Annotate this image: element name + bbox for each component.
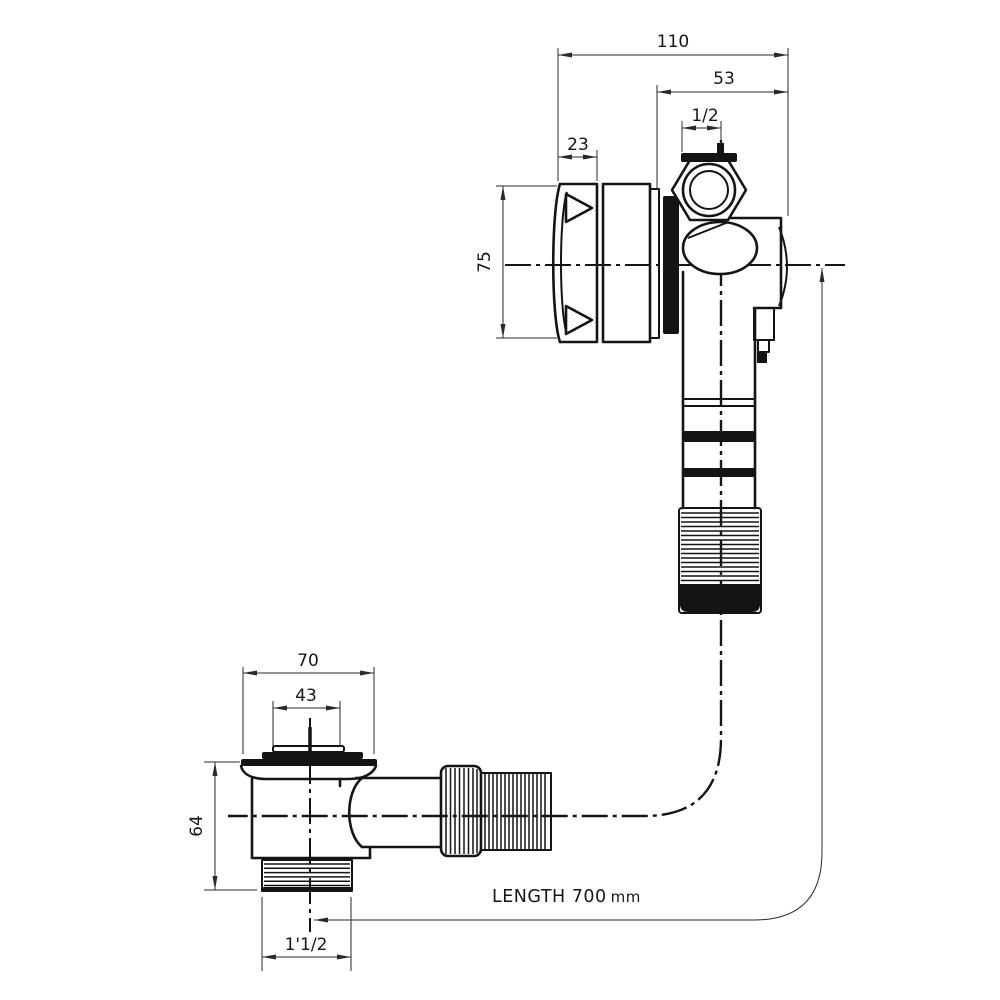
dimension-64: 64 xyxy=(187,762,218,890)
dimension-length-700: LENGTH 700mm xyxy=(492,887,641,907)
dia75-extension-lines xyxy=(496,186,557,338)
outlet-thread-hatch xyxy=(485,774,545,849)
overflow-backplate xyxy=(663,196,679,334)
waste-thread-hatch xyxy=(264,864,350,886)
dimension-43: 43 xyxy=(273,686,340,711)
bracket-step-1 xyxy=(754,308,774,340)
bracket-step-2 xyxy=(758,340,769,352)
label-70: 70 xyxy=(297,651,319,671)
technical-drawing-page: 110 53 1/2 23 75 xyxy=(0,0,1000,1000)
flange-band xyxy=(241,759,377,766)
swivel-ball-joint xyxy=(683,222,757,274)
dimension-75: 75 xyxy=(475,186,506,338)
waste-thread-dark-edge xyxy=(262,887,352,892)
cap-chamfer-mark-bottom xyxy=(566,306,592,334)
waste-thread-extension-lines xyxy=(262,897,351,971)
overflow-ring xyxy=(650,189,659,338)
label-length-700: LENGTH 700mm xyxy=(492,887,641,907)
dimension-110: 110 xyxy=(558,32,788,58)
label-23: 23 xyxy=(567,135,589,155)
length-arrow-up xyxy=(820,268,825,282)
tailpipe-band-1 xyxy=(683,399,755,406)
cap-chamfer-mark-top xyxy=(566,194,592,222)
waste-assembly xyxy=(241,727,551,892)
label-half: 1/2 xyxy=(691,106,718,126)
dimension-23: 23 xyxy=(558,135,597,160)
overflow-cap-left-arc xyxy=(553,184,560,342)
flexible-pipe-centerline xyxy=(228,140,721,816)
outlet-shoulder-arc xyxy=(349,778,362,847)
drawing-canvas: 110 53 1/2 23 75 xyxy=(0,0,1000,1000)
dimension-half-inch: 1/2 xyxy=(682,106,721,131)
overflow-cylinder xyxy=(603,184,650,342)
label-64: 64 xyxy=(187,815,207,837)
overflow-assembly xyxy=(553,143,787,613)
label-110: 110 xyxy=(657,32,689,52)
outlet-cylinder xyxy=(356,778,441,847)
knurl-hatch xyxy=(446,768,477,854)
label-75: 75 xyxy=(475,251,495,273)
dim64-extension-lines xyxy=(204,762,257,890)
dimension-53: 53 xyxy=(657,69,788,95)
tailpipe-band-3 xyxy=(683,468,755,477)
thread-flange-plate xyxy=(681,153,737,162)
label-53: 53 xyxy=(713,69,735,89)
knurled-nut xyxy=(441,766,481,856)
dimension-one-and-half-inch: 1'1/2 xyxy=(262,935,351,960)
bracket-notch xyxy=(757,352,767,363)
corrugation-dark-end xyxy=(680,584,760,612)
plug-mid-plate xyxy=(262,752,363,759)
length-arrow-left xyxy=(314,918,328,923)
label-one-and-half: 1'1/2 xyxy=(285,935,328,955)
dimension-70: 70 xyxy=(243,651,374,676)
label-43: 43 xyxy=(295,686,317,706)
tailpipe-band-2 xyxy=(683,431,755,442)
